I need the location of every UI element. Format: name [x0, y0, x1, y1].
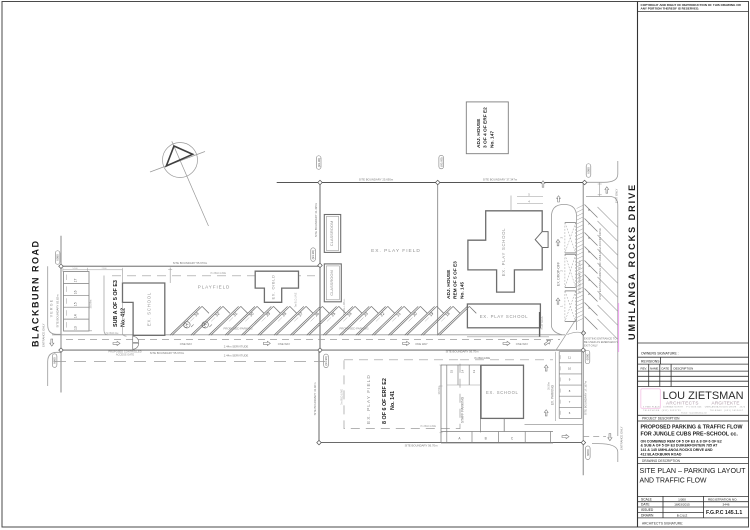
svg-text:13: 13: [472, 370, 476, 374]
svg-text:ARCHITECT'S SIGNATURE:: ARCHITECT'S SIGNATURE:: [642, 521, 683, 525]
svg-text:7m BLD.LINE: 7m BLD.LINE: [295, 292, 298, 307]
svg-text:(93.90): (93.90): [439, 157, 443, 167]
svg-text:2.44m SERVITUDE: 2.44m SERVITUDE: [224, 353, 249, 357]
svg-text:B.C/LIZ: B.C/LIZ: [677, 513, 688, 517]
svg-text:F.G.P.C 145.1.1: F.G.P.C 145.1.1: [706, 510, 742, 516]
svg-text:7m BLD.LINE: 7m BLD.LINE: [340, 389, 344, 405]
svg-text:11: 11: [568, 356, 571, 360]
svg-text:38.59m: 38.59m: [89, 300, 93, 309]
svg-text:REV.: REV.: [641, 366, 648, 370]
svg-text:ENTRANCE ONLY: ENTRANCE ONLY: [620, 426, 624, 450]
svg-text:PLAY AREA: PLAY AREA: [541, 316, 544, 329]
svg-text:DATE: DATE: [641, 503, 650, 507]
svg-text:PLAYFIELD: PLAYFIELD: [198, 285, 231, 290]
svg-text:OWNERS SIGNATURE :: OWNERS SIGNATURE :: [641, 351, 679, 355]
svg-text:VERGE: VERGE: [50, 299, 54, 318]
svg-text:14: 14: [461, 370, 465, 374]
svg-text:16: 16: [74, 290, 78, 294]
svg-text:EX. PLAY SCHOOL: EX. PLAY SCHOOL: [480, 314, 529, 319]
svg-text:ONLY EXISTING PARKING OFF UMHL: ONLY EXISTING PARKING OFF UMHLANGA ROCKS…: [598, 228, 602, 300]
svg-text:PROPOSED PARKING & TRAFFIC: PROPOSED PARKING & TRAFFIC FLOW: [641, 424, 743, 430]
svg-text:FOR JUNGLE CUBS PRE–SCHOOL: FOR JUNGLE CUBS PRE–SCHOOL cc.: [641, 431, 739, 437]
svg-text:13: 13: [74, 326, 78, 330]
svg-text:SCALE: SCALE: [641, 497, 653, 501]
svg-text:SITE BOUNDARY 17.167m: SITE BOUNDARY 17.167m: [584, 380, 588, 415]
svg-text:ONE WAY: ONE WAY: [278, 342, 291, 346]
svg-text:6080: 6080: [586, 353, 590, 360]
svg-text:SITE BOUNDARY 37.347m: SITE BOUNDARY 37.347m: [483, 178, 518, 182]
svg-text:SITE BOUNDARY 56.70m: SITE BOUNDARY 56.70m: [446, 350, 480, 354]
svg-text:EXISTING ENTRANCE TO: EXISTING ENTRANCE TO: [584, 337, 616, 341]
svg-text:1/300: 1/300: [678, 497, 686, 501]
svg-text:NAME: NAME: [650, 366, 658, 370]
svg-text:10: 10: [568, 367, 572, 371]
svg-text:15: 15: [449, 370, 453, 374]
svg-text:ISSUED: ISSUED: [641, 508, 654, 512]
svg-text:CLASSROOM: CLASSROOM: [329, 270, 334, 296]
svg-text:17: 17: [74, 279, 78, 283]
svg-text:SITE BOUNDARY 25.695m: SITE BOUNDARY 25.695m: [359, 178, 394, 182]
svg-text:REM OF 5 OF E3: REM OF 5 OF E3: [453, 261, 459, 299]
svg-text:(93.90): (93.90): [324, 356, 328, 366]
svg-text:6080: 6080: [53, 357, 57, 364]
svg-text:412 BLACKBURN ROAD: 412 BLACKBURN ROAD: [641, 452, 682, 456]
svg-text:SITE BOUNDARY 41.96m: SITE BOUNDARY 41.96m: [313, 382, 317, 416]
svg-text:EX. PLAY FIELD: EX. PLAY FIELD: [366, 374, 372, 424]
svg-text:No. 147: No. 147: [490, 131, 496, 148]
svg-text:3 PINE PLACE DURBAN NORTH: 3 PINE PLACE DURBAN NORTH P O BOX 666 UM…: [643, 406, 746, 409]
svg-text:PROPOSED PARKING: PROPOSED PARKING: [339, 327, 368, 331]
svg-text:EX. DROP-OFF: EX. DROP-OFF: [557, 262, 561, 286]
svg-text:UMHLANGA ROCKS DRIVE: UMHLANGA ROCKS DRIVE: [627, 183, 637, 340]
svg-text:7m BLD.line: 7m BLD.line: [105, 332, 119, 335]
svg-text:ONE WAY: ONE WAY: [180, 342, 193, 346]
svg-text:ONE WAY: ONE WAY: [516, 342, 529, 346]
svg-text:STAFF PARKING: STAFF PARKING: [461, 396, 465, 423]
svg-text:7m BLD.LINE: 7m BLD.LINE: [420, 424, 436, 428]
svg-text:6080: 6080: [586, 449, 590, 456]
svg-text:DATE: DATE: [662, 366, 670, 370]
svg-text:ANY PORTION THEREOF IS RESERVE: ANY PORTION THEREOF IS RESERVED.: [641, 7, 700, 11]
svg-text:5.500: 5.500: [72, 268, 78, 270]
svg-text:ADJ. HOUSE: ADJ. HOUSE: [446, 269, 452, 299]
svg-text:TELEPHONE (031) 5633739: TELEPHONE (031) 5633739 TELEFAX (031) 56…: [643, 409, 744, 412]
svg-text:6080: 6080: [56, 254, 60, 261]
svg-text:DRAWING DESCRIPTION: DRAWING DESCRIPTION: [642, 459, 681, 463]
svg-text:SITE BOUNDARY 56.70m: SITE BOUNDARY 56.70m: [405, 444, 439, 448]
svg-text:B: B: [485, 437, 487, 441]
svg-text:SITE BOUNDARY 55.670m: SITE BOUNDARY 55.670m: [150, 351, 185, 355]
svg-text:DRAWN: DRAWN: [641, 513, 654, 517]
svg-text:15: 15: [74, 302, 78, 306]
svg-text:SITE BOUNDARY 83.82m: SITE BOUNDARY 83.82m: [56, 294, 60, 328]
svg-text:3 OF 4 OF ERF E2: 3 OF 4 OF ERF E2: [483, 107, 489, 148]
svg-text:BLACKBURN ROAD: BLACKBURN ROAD: [31, 240, 41, 348]
svg-text:3446: 3446: [723, 503, 730, 507]
svg-text:EX. SCHOOL: EX. SCHOOL: [486, 390, 519, 395]
svg-text:ARCHITECTS: ARCHITECTS: [666, 401, 699, 406]
svg-text:No. 141: No. 141: [390, 391, 396, 410]
svg-text:(93.90): (93.90): [317, 158, 321, 168]
svg-text:ONE WAY: ONE WAY: [415, 342, 428, 346]
svg-text:7m BLD.LINE: 7m BLD.LINE: [210, 271, 226, 275]
svg-text:CLASSROOM: CLASSROOM: [329, 221, 334, 247]
svg-text:SUB A OF 5 OF E3: SUB A OF 5 OF E3: [113, 280, 119, 327]
svg-text:38.59m: 38.59m: [437, 386, 441, 395]
svg-text:No. 412: No. 412: [121, 308, 127, 327]
svg-text:6080: 6080: [587, 167, 591, 174]
svg-text:8 OF 6 OF ERF E2: 8 OF 6 OF ERF E2: [382, 378, 388, 424]
svg-text:SITE BOUNDARY 55.670m: SITE BOUNDARY 55.670m: [173, 261, 208, 265]
svg-text:ARGITEKTE: ARGITEKTE: [712, 401, 740, 406]
svg-text:EX. PLAY FIELD: EX. PLAY FIELD: [371, 248, 421, 254]
svg-text:7m BLD.LINE: 7m BLD.LINE: [474, 356, 490, 360]
svg-text:PROPOSED PARKING: PROPOSED PARKING: [223, 327, 252, 331]
svg-text:(93.90): (93.90): [311, 250, 315, 260]
svg-text:2.44m SERVITUDE: 2.44m SERVITUDE: [224, 345, 249, 349]
svg-text:ADJ. HOUSE: ADJ. HOUSE: [476, 118, 482, 148]
svg-text:ENTRANCE ONLY: ENTRANCE ONLY: [42, 323, 46, 347]
svg-text:EXIT ONLY: EXIT ONLY: [614, 189, 618, 203]
svg-text:EX. SCHOOL: EX. SCHOOL: [147, 292, 152, 326]
svg-text:14: 14: [74, 314, 78, 318]
svg-text:AND TRAFFIC FLOW: AND TRAFFIC FLOW: [640, 476, 708, 485]
svg-text:EX. PARKING: EX. PARKING: [551, 384, 555, 405]
svg-text:38.59m: 38.59m: [548, 382, 551, 390]
svg-text:EX. PLAY SCHOOL: EX. PLAY SCHOOL: [501, 228, 506, 277]
svg-text:REVISIONS: REVISIONS: [641, 360, 660, 364]
svg-text:7.300: 7.300: [101, 268, 107, 270]
svg-text:DESCRIPTION: DESCRIPTION: [674, 366, 694, 370]
svg-text:E-mail : louziet@iafrica.net: E-mail : louziet@iafrica.net: [681, 412, 707, 415]
svg-text:No. 145: No. 145: [460, 282, 466, 299]
svg-text:SITE PLAN – PARKING LAYOUT: SITE PLAN – PARKING LAYOUT: [640, 466, 746, 475]
svg-text:SITE BOUNDARY 31.495m: SITE BOUNDARY 31.495m: [314, 202, 318, 237]
svg-text:BE USED AS EMERGENCY: BE USED AS EMERGENCY: [584, 340, 618, 344]
svg-text:EXIT ONLY: EXIT ONLY: [584, 344, 598, 348]
svg-text:18/03/2015: 18/03/2015: [674, 503, 690, 507]
svg-text:PROJECT DESCRIPTION: PROJECT DESCRIPTION: [642, 417, 680, 421]
svg-text:EX. O/BLD: EX. O/BLD: [271, 275, 276, 300]
svg-text:ACCESS GATE: ACCESS GATE: [116, 353, 135, 357]
svg-text:REGISTRATION NO.: REGISTRATION NO.: [708, 497, 737, 501]
